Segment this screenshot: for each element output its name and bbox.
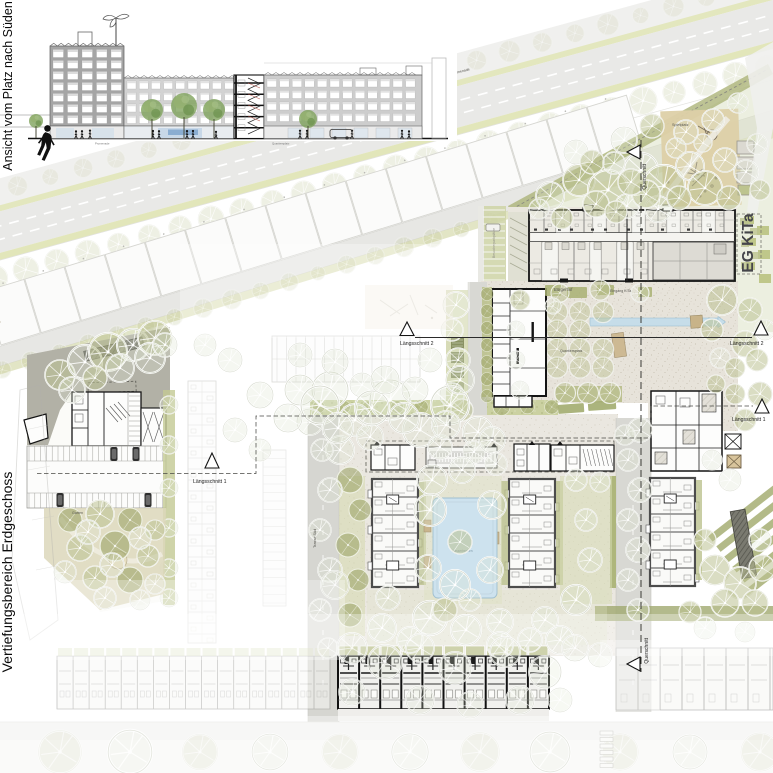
svg-text:EG KiTa: EG KiTa	[740, 213, 757, 273]
svg-text:Spielplatz: Spielplatz	[672, 123, 689, 127]
svg-text:Trasse Süd: Trasse Süd	[313, 529, 317, 548]
svg-text:Längsschnitt 2: Längsschnitt 2	[400, 341, 434, 347]
svg-text:Garten: Garten	[72, 511, 83, 515]
svg-text:Besucherparkplätze: Besucherparkplätze	[492, 228, 496, 258]
svg-text:Längsschnitt 1: Längsschnitt 1	[193, 479, 227, 485]
svg-text:Eingang KiTa: Eingang KiTa	[610, 289, 631, 293]
svg-text:Längsschnitt 1: Längsschnitt 1	[732, 417, 766, 423]
svg-text:Promenade: Promenade	[95, 142, 110, 146]
svg-text:Vertiefungsbereich Erdgeschoss: Vertiefungsbereich Erdgeschoss	[0, 472, 15, 673]
svg-text:Längsschnitt 2: Längsschnitt 2	[730, 341, 764, 347]
svg-text:Quartiersplatz: Quartiersplatz	[560, 349, 583, 353]
svg-text:Bürgerhof: Bürgerhof	[554, 287, 573, 292]
svg-text:Querschnitt: Querschnitt	[642, 163, 648, 189]
svg-text:Ansicht vom Platz nach Süden: Ansicht vom Platz nach Süden	[1, 1, 15, 171]
svg-text:Querschnitt: Querschnitt	[644, 637, 650, 663]
svg-text:Quartiersplatz: Quartiersplatz	[272, 142, 290, 146]
